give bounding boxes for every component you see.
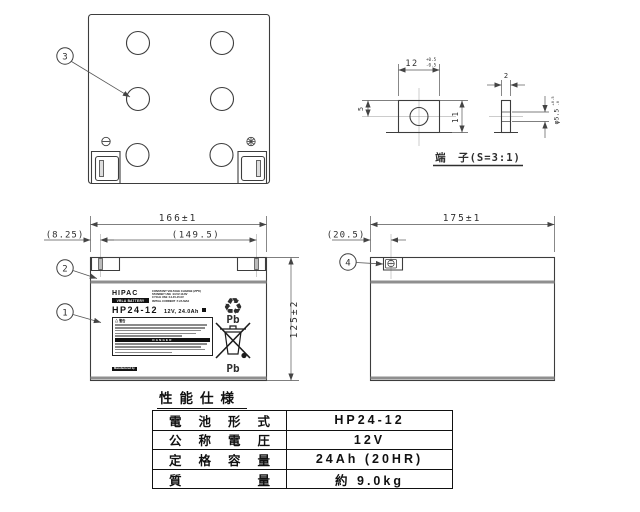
table-row: 公称電圧 12V bbox=[153, 430, 452, 450]
warning-text-line bbox=[115, 352, 172, 354]
table-row: 定格容量 24Ah (20HR) bbox=[153, 449, 452, 469]
vent-hole bbox=[127, 88, 150, 111]
vent-hole bbox=[211, 32, 234, 55]
spec-value-capacity: 24Ah (20HR) bbox=[287, 450, 452, 469]
vent-hole bbox=[210, 144, 233, 167]
charge-info: CONSTANT VOLTAGE CHARGE (25℃) STANDBY US… bbox=[149, 290, 213, 303]
callout-1: 1 bbox=[57, 304, 101, 323]
dim-terminal-top: 5 bbox=[357, 107, 365, 111]
warning-text-line bbox=[115, 330, 201, 332]
spec-key-voltage: 公称電圧 bbox=[153, 430, 286, 449]
table-row: 電池形式 HP24-12 bbox=[153, 411, 452, 430]
top-terminal-left bbox=[96, 157, 119, 181]
pb-recycle-text: Pb bbox=[226, 313, 240, 326]
pb-bin-text: Pb bbox=[226, 362, 240, 375]
dim-terminal-thickness: 2 bbox=[504, 72, 508, 80]
dim-side-offset: (20.5) bbox=[327, 231, 366, 241]
callout-1-number: 1 bbox=[62, 309, 67, 319]
plus-terminal-icon bbox=[247, 137, 255, 145]
crossed-bin-icon bbox=[216, 323, 250, 358]
dim-terminal-hole-tol-dn: -0 bbox=[555, 100, 560, 105]
battery-label: HIPAC VRLA BATTERY CONSTANT VOLTAGE CHAR… bbox=[112, 290, 213, 374]
model-number: HP24-12 bbox=[112, 305, 158, 315]
spec-value-voltage: 12V bbox=[287, 431, 452, 450]
rating-text: 12V, 24.0Ah bbox=[164, 309, 199, 315]
terminal-detail-title: 端 子(S=3:1) bbox=[435, 151, 521, 164]
warning-heading: △ 警告 bbox=[115, 319, 210, 323]
dim-front-width: 166±1 bbox=[159, 213, 198, 224]
dim-front-pitch: (149.5) bbox=[172, 231, 220, 241]
terminal-detail-view: 12 +0.5 -0.5 5 11 2 φ5.5 +0.5 -0 端 子(S=3… bbox=[357, 57, 561, 166]
table-row: 質量 約 9.0kg bbox=[153, 469, 452, 489]
battery-drawing-sheet: 3 bbox=[0, 0, 640, 512]
dim-terminal-width-tol-dn: -0.5 bbox=[426, 63, 437, 68]
top-terminal-right bbox=[242, 157, 265, 181]
dim-terminal-width-tol-up: +0.5 bbox=[426, 57, 437, 62]
warning-box: △ 警告 DANGER bbox=[112, 317, 213, 357]
spec-key-capacity: 定格容量 bbox=[153, 450, 286, 469]
manufacturer-heading: Manufactured by bbox=[112, 367, 137, 371]
spec-value-mass: 約 9.0kg bbox=[287, 470, 452, 489]
danger-heading: DANGER bbox=[115, 338, 210, 342]
warning-text-line bbox=[115, 335, 182, 337]
warning-text-line bbox=[115, 343, 207, 345]
callout-4: 4 bbox=[340, 254, 383, 270]
dim-terminal-width: 12 bbox=[405, 59, 418, 69]
callout-3: 3 bbox=[57, 48, 130, 97]
warning-text-line bbox=[115, 349, 205, 351]
warning-text-line bbox=[115, 327, 205, 329]
model-row: HP24-12 12V, 24.0Ah bbox=[112, 305, 213, 315]
spec-table: 電池形式 HP24-12 公称電圧 12V 定格容量 24Ah (20HR) 質… bbox=[152, 410, 453, 489]
side-view: 175±1 (20.5) bbox=[327, 213, 555, 381]
dim-terminal-height: 11 bbox=[451, 110, 460, 123]
label-header: HIPAC VRLA BATTERY CONSTANT VOLTAGE CHAR… bbox=[112, 290, 213, 303]
callout-2-number: 2 bbox=[62, 265, 67, 275]
dim-terminal-hole: φ5.5 bbox=[553, 109, 561, 125]
vent-hole bbox=[127, 32, 150, 55]
warning-text-line bbox=[115, 346, 201, 348]
minus-terminal-icon bbox=[102, 137, 110, 145]
spec-table-title: 性能仕様 bbox=[157, 387, 247, 412]
spec-key-model: 電池形式 bbox=[153, 411, 286, 430]
brand-subtitle: VRLA BATTERY bbox=[112, 299, 149, 303]
charge-line: INITIAL CURRENT :7.2A MAX bbox=[152, 300, 213, 303]
callout-4-number: 4 bbox=[345, 259, 350, 269]
callout-3-number: 3 bbox=[62, 53, 67, 63]
warning-text-line bbox=[115, 333, 196, 335]
vent-hole bbox=[211, 88, 234, 111]
dim-side-width: 175±1 bbox=[443, 213, 482, 224]
top-view bbox=[89, 15, 270, 184]
vent-hole bbox=[126, 144, 149, 167]
spec-value-model: HP24-12 bbox=[287, 411, 452, 430]
spec-key-mass: 質量 bbox=[153, 470, 286, 489]
label-mark-icon bbox=[202, 308, 206, 312]
dim-front-height: 125±2 bbox=[289, 300, 300, 339]
dim-front-offset: (8.25) bbox=[46, 231, 85, 241]
brand-name: HIPAC bbox=[112, 290, 149, 299]
warning-text-line bbox=[115, 324, 207, 326]
